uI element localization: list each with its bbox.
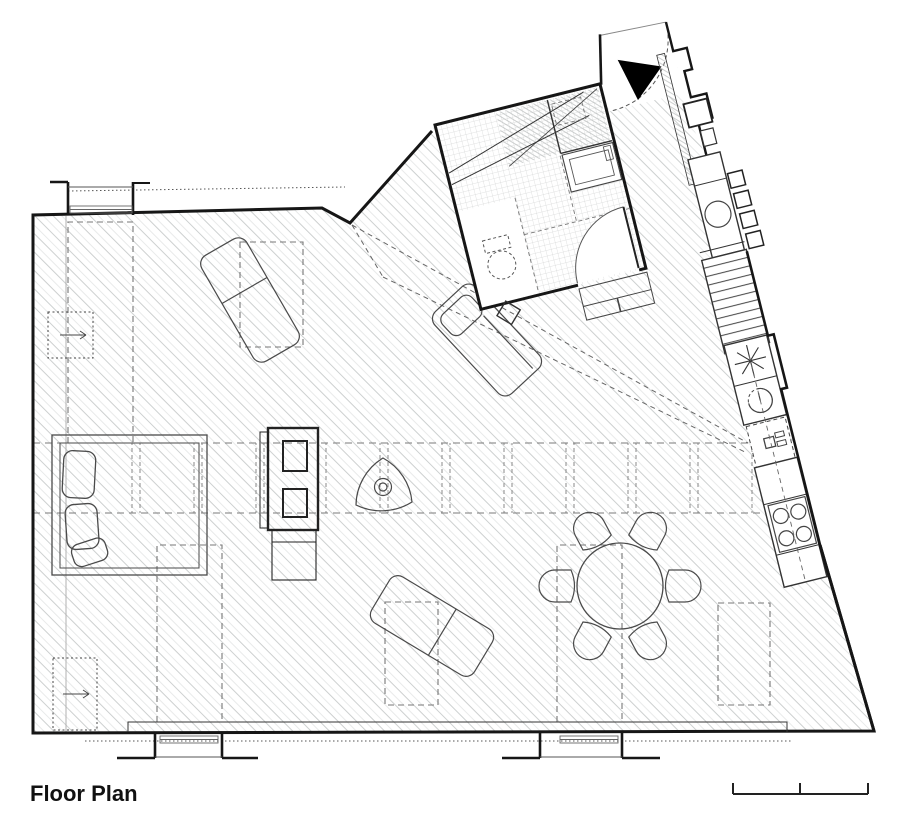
window-bay-bottom-center — [502, 733, 660, 758]
floor-plan-page: Floor Plan — [0, 0, 900, 837]
page-title: Floor Plan — [30, 781, 138, 806]
roof-edge-dotted — [68, 187, 345, 191]
floor-plan-drawing: Floor Plan — [0, 0, 900, 837]
window-bay-top — [50, 182, 150, 215]
radiator — [560, 736, 618, 743]
entry-niche — [683, 98, 712, 127]
scale-bar — [733, 783, 868, 794]
radiator — [160, 736, 218, 743]
beam-band — [33, 443, 783, 513]
window-bay-bottom-left — [117, 733, 258, 758]
